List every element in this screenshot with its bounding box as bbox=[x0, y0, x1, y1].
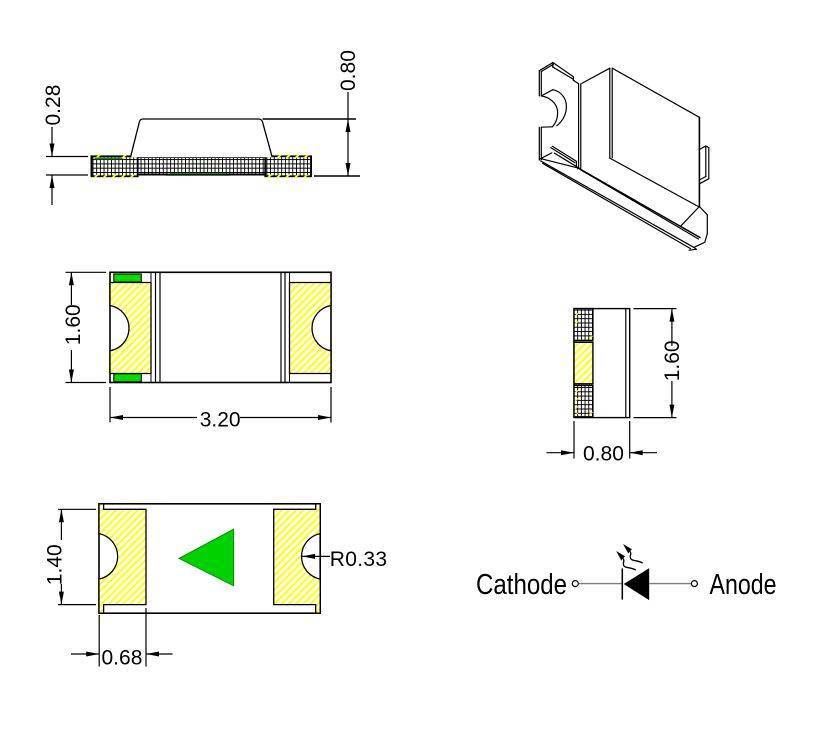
svg-text:Anode: Anode bbox=[710, 569, 777, 601]
svg-text:3.20: 3.20 bbox=[200, 409, 241, 432]
svg-text:1.60: 1.60 bbox=[62, 304, 85, 345]
svg-text:0.80: 0.80 bbox=[583, 443, 624, 466]
svg-text:1.60: 1.60 bbox=[661, 340, 684, 381]
svg-text:0.28: 0.28 bbox=[42, 85, 65, 126]
svg-text:0.80: 0.80 bbox=[337, 50, 360, 91]
svg-text:1.40: 1.40 bbox=[44, 544, 67, 585]
svg-text:Cathode: Cathode bbox=[476, 569, 567, 601]
svg-text:0.68: 0.68 bbox=[102, 646, 143, 669]
svg-text:R0.33: R0.33 bbox=[330, 548, 388, 571]
